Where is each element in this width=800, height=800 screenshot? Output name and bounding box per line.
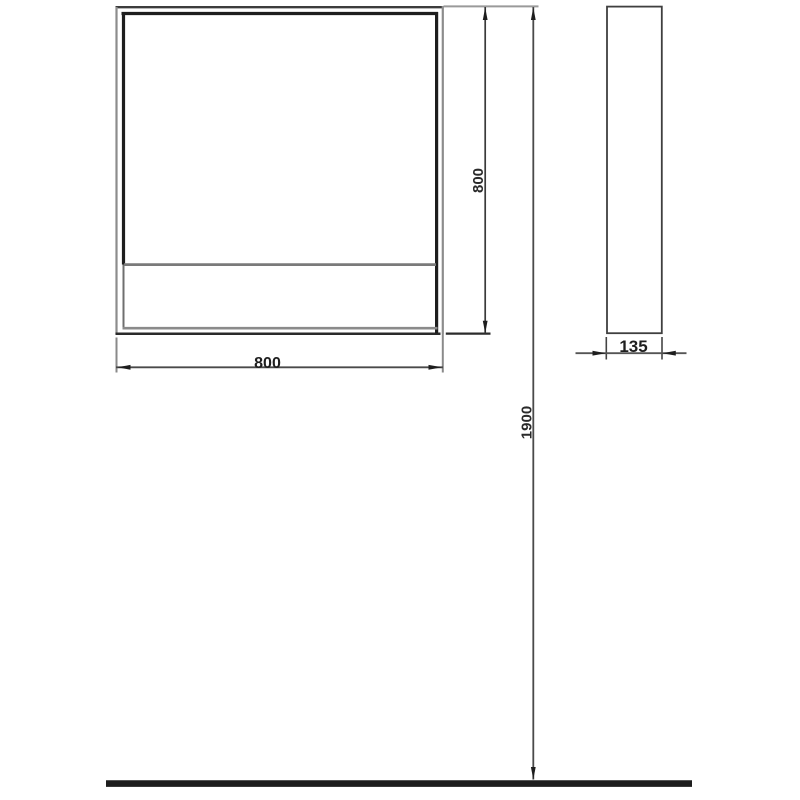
svg-text:800: 800 xyxy=(470,168,487,193)
svg-text:1900: 1900 xyxy=(519,406,536,439)
svg-text:135: 135 xyxy=(619,337,647,356)
svg-text:800: 800 xyxy=(254,355,281,372)
